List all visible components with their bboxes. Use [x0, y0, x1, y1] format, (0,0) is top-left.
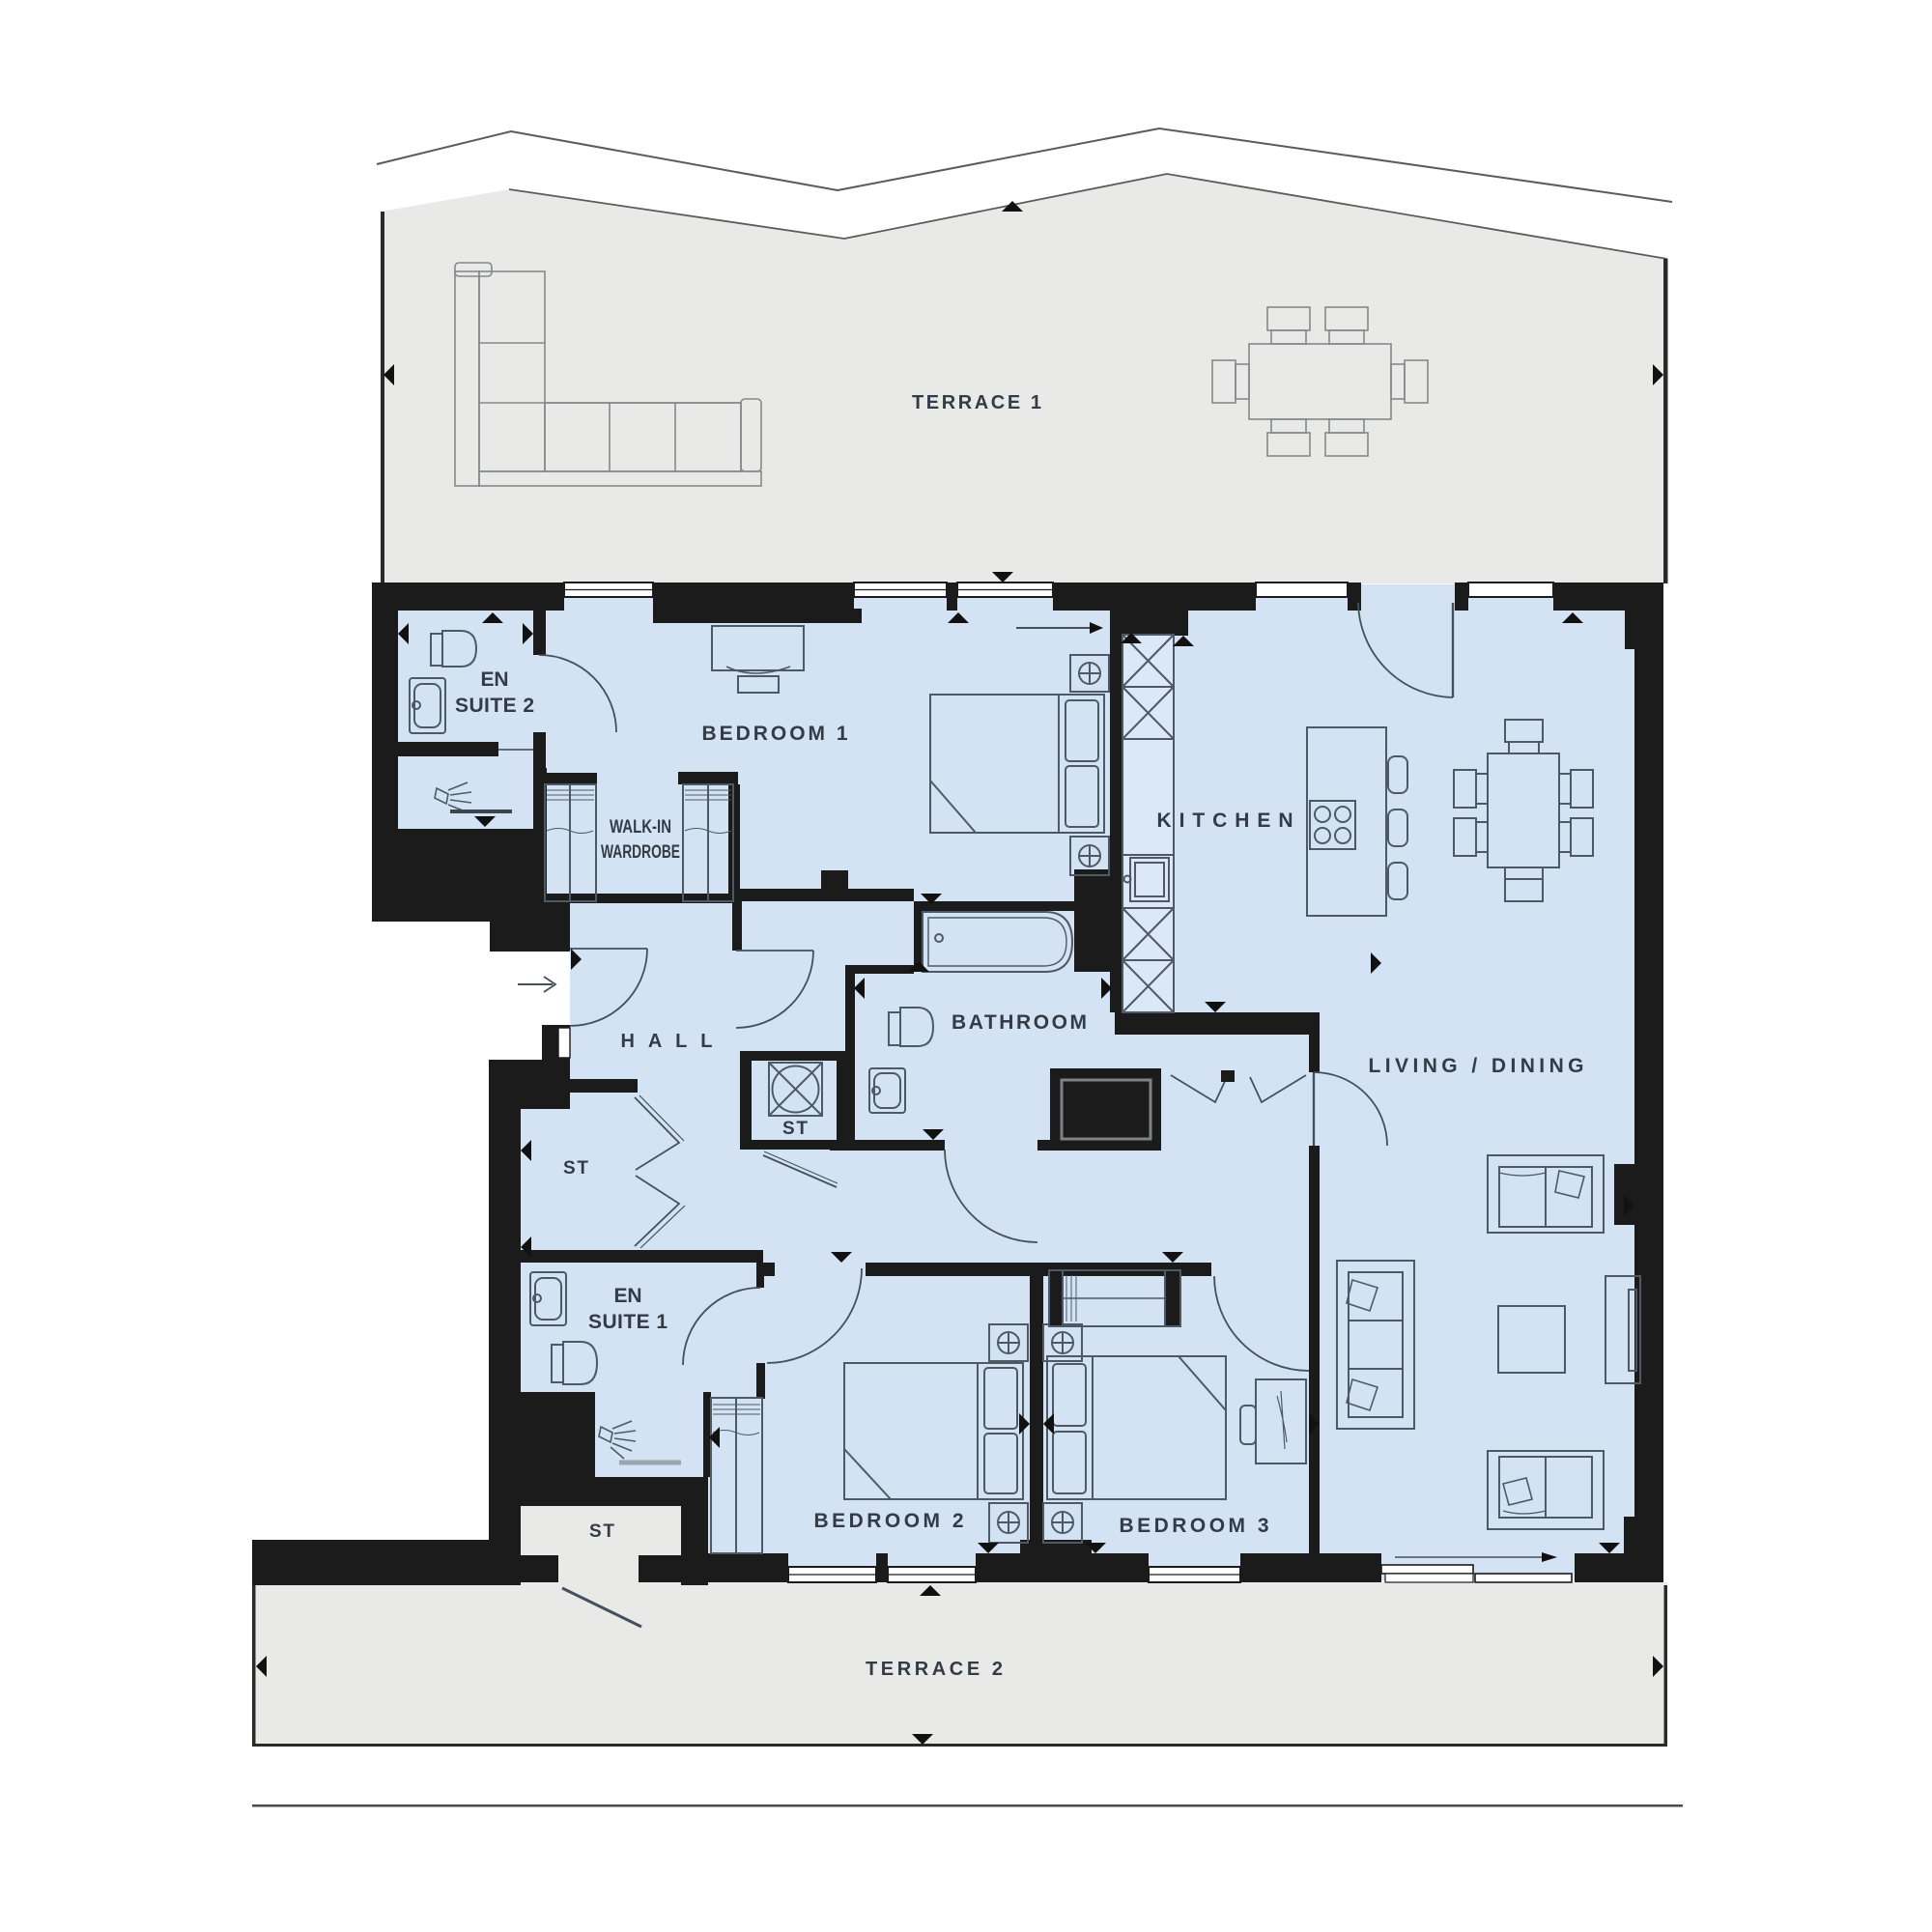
svg-text:LIVING / DINING: LIVING / DINING: [1369, 1055, 1584, 1077]
svg-text:SUITE 2: SUITE 2: [455, 695, 534, 717]
svg-text:BATHROOM: BATHROOM: [952, 1011, 1087, 1034]
svg-text:EN: EN: [614, 1285, 642, 1307]
svg-text:WARDROBE: WARDROBE: [601, 842, 680, 863]
svg-text:TERRACE 1: TERRACE 1: [912, 392, 1041, 413]
svg-text:SUITE 1: SUITE 1: [588, 1311, 668, 1333]
svg-text:WALK-IN: WALK-IN: [610, 817, 671, 838]
svg-text:EN: EN: [481, 668, 509, 691]
